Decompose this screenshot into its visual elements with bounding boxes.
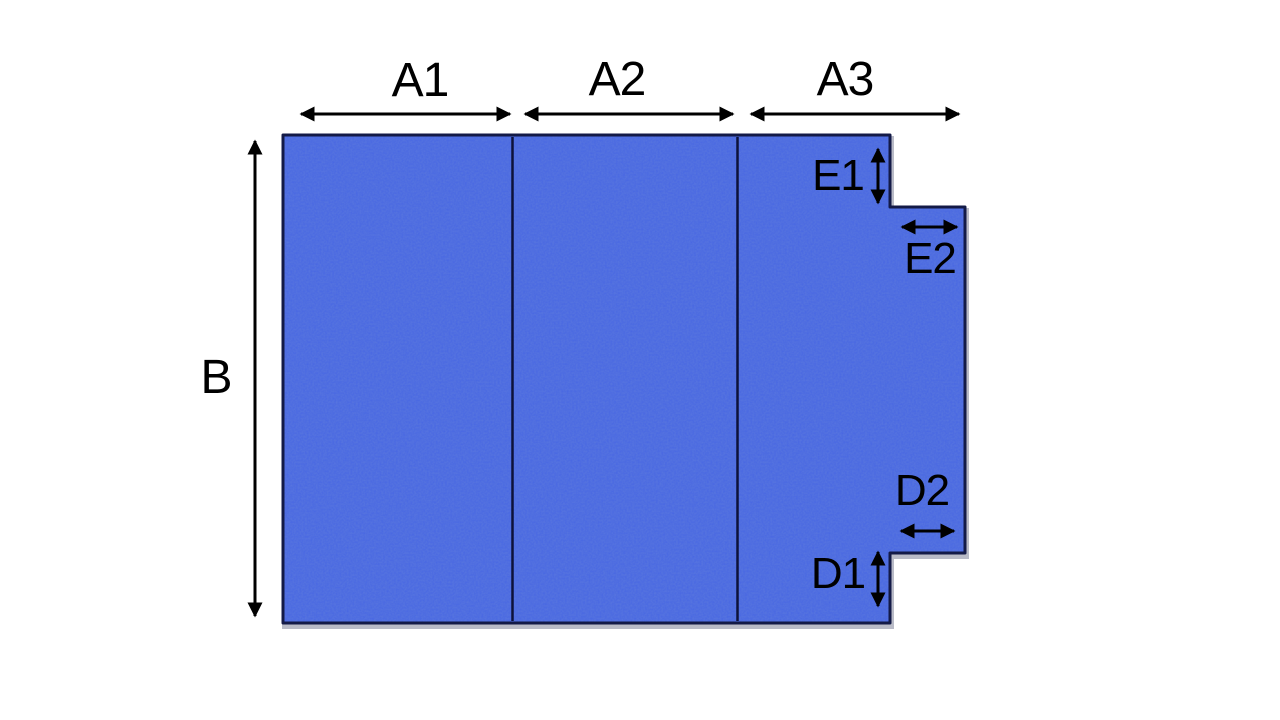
dimension-label-d2: D2: [895, 469, 949, 513]
diagram-canvas: A1 A2 A3 B E1 E2 D2 D1: [0, 0, 1280, 720]
fabric-diagram-svg: [0, 0, 1280, 720]
dimension-label-d1: D1: [811, 552, 865, 596]
dimension-label-a1: A1: [392, 57, 449, 105]
dimension-label-a2: A2: [589, 56, 646, 104]
dimension-label-e2: E2: [904, 237, 956, 281]
dimension-label-e1: E1: [812, 154, 864, 198]
dimension-label-a3: A3: [817, 56, 874, 104]
dimension-label-b: B: [200, 354, 231, 402]
